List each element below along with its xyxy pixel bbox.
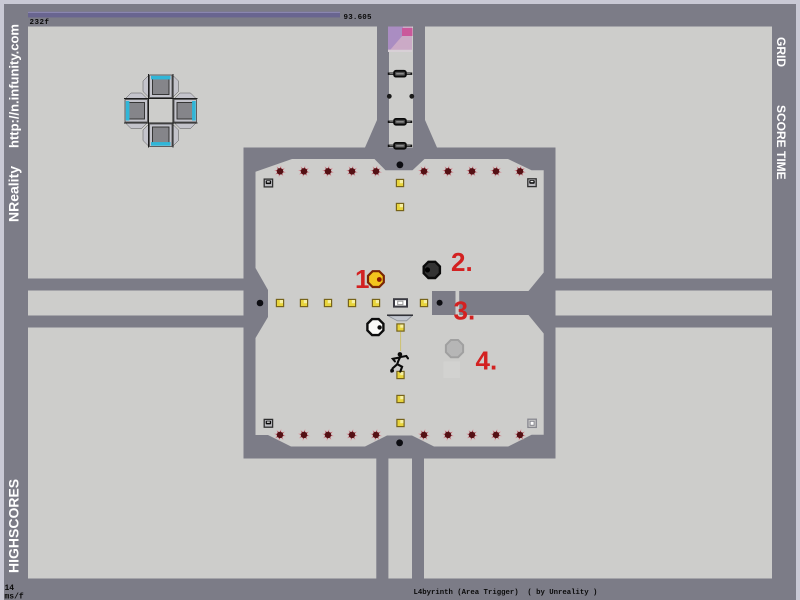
svg-text:ms/f: ms/f <box>5 593 24 600</box>
svg-text:HIGHSCORES: HIGHSCORES <box>6 479 22 573</box>
svg-text:http://n.infunity.com: http://n.infunity.com <box>7 24 22 148</box>
svg-text:2.: 2. <box>451 247 473 277</box>
svg-text:NReality: NReality <box>6 166 22 222</box>
svg-text:4.: 4. <box>476 346 498 376</box>
svg-text:SCORE TIME: SCORE TIME <box>774 105 788 180</box>
svg-text:232f: 232f <box>30 19 50 27</box>
svg-text:GRID: GRID <box>774 37 788 67</box>
svg-text:1: 1 <box>355 264 369 294</box>
svg-text:3.: 3. <box>454 296 476 326</box>
svg-text:L4byrinth (Area Trigger) ( by: L4byrinth (Area Trigger) ( by Unreality … <box>414 589 598 597</box>
svg-text:93.605: 93.605 <box>344 14 373 22</box>
